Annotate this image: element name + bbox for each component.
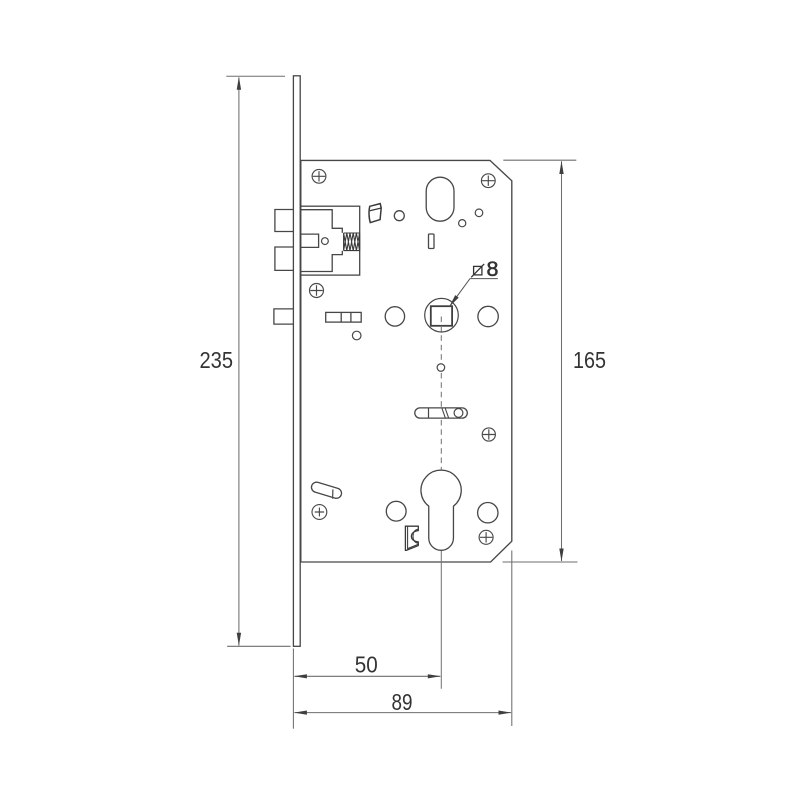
svg-text:235: 235: [200, 347, 234, 373]
svg-text:89: 89: [392, 689, 413, 715]
svg-text:165: 165: [573, 347, 606, 373]
svg-text:8: 8: [487, 257, 499, 281]
svg-text:50: 50: [355, 652, 378, 678]
